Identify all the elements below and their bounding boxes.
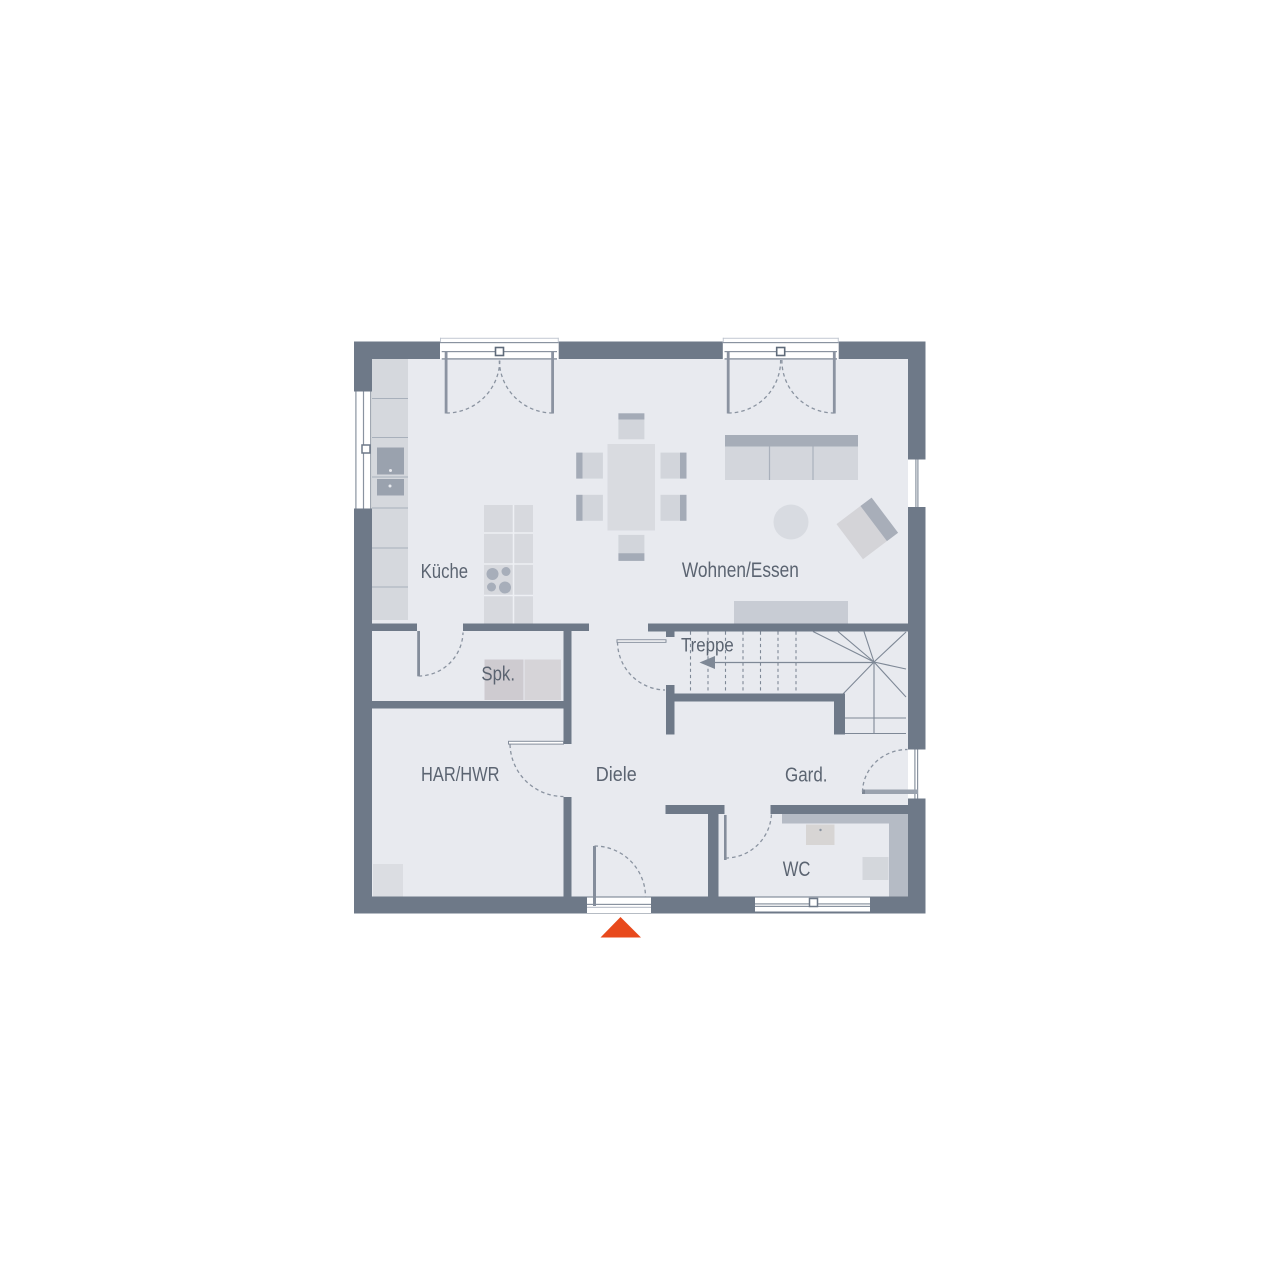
svg-text:Spk.: Spk. <box>481 664 515 686</box>
svg-text:Wohnen/Essen: Wohnen/Essen <box>682 559 799 582</box>
svg-text:WC: WC <box>783 858 811 881</box>
svg-text:Gard.: Gard. <box>785 764 828 787</box>
svg-text:Diele: Diele <box>596 763 637 786</box>
svg-text:Küche: Küche <box>421 561 469 583</box>
svg-text:Treppe: Treppe <box>681 635 734 656</box>
svg-text:HAR/HWR: HAR/HWR <box>421 763 500 786</box>
